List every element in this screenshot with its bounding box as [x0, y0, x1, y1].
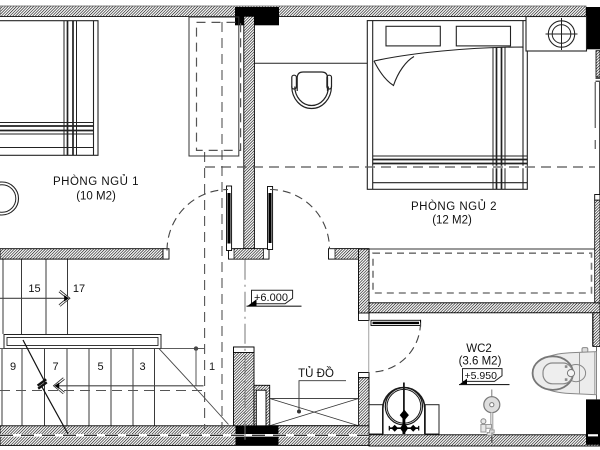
svg-text:7: 7 [52, 361, 58, 373]
svg-text:PHÒNG NGỦ 1: PHÒNG NGỦ 1 [53, 175, 139, 188]
svg-text:TỦ ĐỒ: TỦ ĐỒ [298, 367, 334, 380]
svg-text:WC2: WC2 [466, 343, 492, 355]
svg-text:(3.6 M2): (3.6 M2) [459, 356, 502, 368]
svg-text:3: 3 [139, 361, 145, 373]
svg-text:(10 M2): (10 M2) [76, 191, 116, 203]
svg-text:17: 17 [73, 283, 85, 295]
svg-text:1: 1 [209, 361, 215, 373]
svg-text:15: 15 [28, 283, 40, 295]
svg-text:+5.950: +5.950 [465, 370, 498, 382]
svg-text:5: 5 [97, 361, 103, 373]
svg-text:+6.000: +6.000 [254, 292, 288, 304]
svg-text:9: 9 [10, 361, 16, 373]
svg-text:(12 M2): (12 M2) [432, 215, 472, 227]
svg-text:PHÒNG NGỦ 2: PHÒNG NGỦ 2 [411, 200, 497, 213]
